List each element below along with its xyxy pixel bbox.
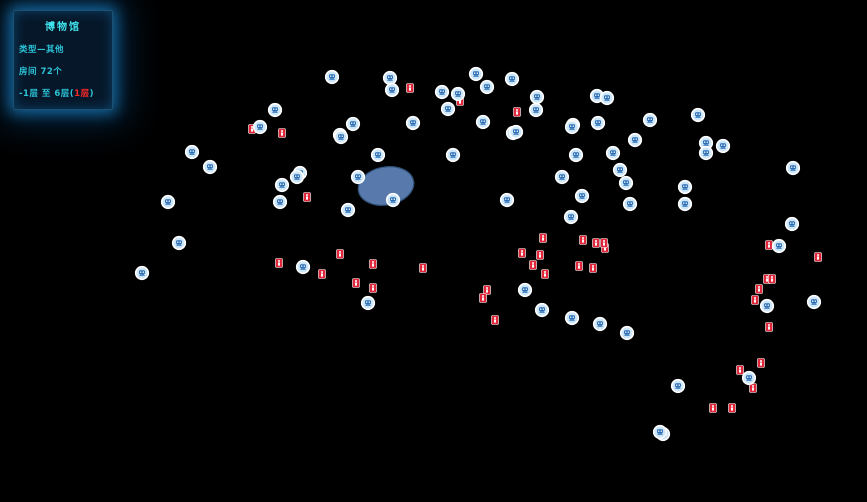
camera-marker-icon[interactable] — [679, 198, 692, 211]
exit-marker-icon[interactable] — [514, 108, 521, 117]
camera-marker-icon[interactable] — [362, 297, 375, 310]
camera-marker-icon[interactable] — [773, 240, 786, 253]
floor-range-prefix: -1层 至 6层( — [19, 89, 74, 99]
building-floors-row: -1层 至 6层(1层) — [19, 87, 107, 99]
camera-marker-icon[interactable] — [452, 88, 465, 101]
camera-marker-icon[interactable] — [447, 149, 460, 162]
app-viewport: 博物馆 类型—其他 房间 72个 -1层 至 6层(1层) — [0, 0, 867, 502]
exit-marker-icon[interactable] — [769, 275, 776, 284]
camera-marker-icon[interactable] — [506, 73, 519, 86]
building-info-panel: 博物馆 类型—其他 房间 72个 -1层 至 6层(1层) — [13, 10, 113, 110]
camera-marker-icon[interactable] — [342, 204, 355, 217]
camera-marker-icon[interactable] — [654, 426, 667, 439]
camera-marker-icon[interactable] — [442, 103, 455, 116]
camera-marker-icon[interactable] — [204, 161, 217, 174]
camera-marker-icon[interactable] — [276, 179, 289, 192]
exit-marker-icon[interactable] — [590, 264, 597, 273]
exit-marker-icon[interactable] — [766, 241, 773, 250]
building-rooms-row: 房间 72个 — [19, 65, 107, 77]
camera-marker-icon[interactable] — [436, 86, 449, 99]
camera-marker-icon[interactable] — [556, 171, 569, 184]
camera-marker-icon[interactable] — [326, 71, 339, 84]
exit-marker-icon[interactable] — [542, 270, 549, 279]
camera-marker-icon[interactable] — [274, 196, 287, 209]
exit-marker-icon[interactable] — [420, 264, 427, 273]
camera-marker-icon[interactable] — [570, 149, 583, 162]
camera-marker-icon[interactable] — [162, 196, 175, 209]
exit-marker-icon[interactable] — [540, 234, 547, 243]
camera-marker-icon[interactable] — [700, 147, 713, 160]
camera-marker-icon[interactable] — [787, 162, 800, 175]
camera-marker-icon[interactable] — [601, 92, 614, 105]
camera-marker-icon[interactable] — [136, 267, 149, 280]
camera-marker-icon[interactable] — [347, 118, 360, 131]
exit-marker-icon[interactable] — [766, 323, 773, 332]
exit-marker-icon[interactable] — [537, 251, 544, 260]
camera-marker-icon[interactable] — [173, 237, 186, 250]
camera-marker-icon[interactable] — [565, 211, 578, 224]
camera-marker-icon[interactable] — [620, 177, 633, 190]
camera-marker-icon[interactable] — [536, 304, 549, 317]
exit-marker-icon[interactable] — [480, 294, 487, 303]
camera-marker-icon[interactable] — [510, 126, 523, 139]
camera-marker-icon[interactable] — [692, 109, 705, 122]
exit-marker-icon[interactable] — [353, 279, 360, 288]
exit-marker-icon[interactable] — [304, 193, 311, 202]
camera-marker-icon[interactable] — [269, 104, 282, 117]
camera-marker-icon[interactable] — [614, 164, 627, 177]
camera-marker-icon[interactable] — [470, 68, 483, 81]
camera-marker-icon[interactable] — [335, 131, 348, 144]
camera-marker-icon[interactable] — [717, 140, 730, 153]
camera-marker-icon[interactable] — [566, 312, 579, 325]
camera-marker-icon[interactable] — [407, 117, 420, 130]
exit-marker-icon[interactable] — [370, 284, 377, 293]
camera-marker-icon[interactable] — [519, 284, 532, 297]
camera-marker-icon[interactable] — [481, 81, 494, 94]
exit-marker-icon[interactable] — [407, 84, 414, 93]
camera-marker-icon[interactable] — [297, 261, 310, 274]
exit-marker-icon[interactable] — [492, 316, 499, 325]
camera-marker-icon[interactable] — [384, 72, 397, 85]
exit-marker-icon[interactable] — [756, 285, 763, 294]
camera-marker-icon[interactable] — [761, 300, 774, 313]
exit-marker-icon[interactable] — [593, 239, 600, 248]
exit-marker-icon[interactable] — [710, 404, 717, 413]
selection-blob — [355, 162, 417, 209]
exit-marker-icon[interactable] — [279, 129, 286, 138]
camera-marker-icon[interactable] — [531, 91, 544, 104]
camera-marker-icon[interactable] — [291, 171, 304, 184]
exit-marker-icon[interactable] — [601, 239, 608, 248]
markers-layer — [136, 68, 822, 441]
building-3d-scene[interactable] — [0, 0, 867, 502]
camera-marker-icon[interactable] — [607, 147, 620, 160]
camera-marker-icon[interactable] — [679, 181, 692, 194]
exit-marker-icon[interactable] — [276, 259, 283, 268]
camera-marker-icon[interactable] — [372, 149, 385, 162]
camera-marker-icon[interactable] — [621, 327, 634, 340]
building-name: 博物馆 — [19, 18, 107, 33]
camera-marker-icon[interactable] — [530, 104, 543, 117]
exit-marker-icon[interactable] — [576, 262, 583, 271]
camera-marker-icon[interactable] — [501, 194, 514, 207]
camera-marker-icon[interactable] — [477, 116, 490, 129]
camera-marker-icon[interactable] — [594, 318, 607, 331]
camera-marker-icon[interactable] — [624, 198, 637, 211]
exit-marker-icon[interactable] — [737, 366, 744, 375]
camera-marker-icon[interactable] — [566, 121, 579, 134]
camera-marker-icon[interactable] — [808, 296, 821, 309]
exit-marker-icon[interactable] — [580, 236, 587, 245]
camera-marker-icon[interactable] — [386, 84, 399, 97]
camera-marker-icon[interactable] — [576, 190, 589, 203]
building-type-row: 类型—其他 — [19, 43, 107, 55]
exit-marker-icon[interactable] — [752, 296, 759, 305]
camera-marker-icon[interactable] — [786, 218, 799, 231]
camera-marker-icon[interactable] — [254, 121, 267, 134]
current-floor: 1层 — [74, 89, 89, 99]
camera-marker-icon[interactable] — [644, 114, 657, 127]
exit-marker-icon[interactable] — [319, 270, 326, 279]
exit-marker-icon[interactable] — [370, 260, 377, 269]
exit-marker-icon[interactable] — [530, 261, 537, 270]
exit-marker-icon[interactable] — [484, 286, 491, 295]
camera-marker-icon[interactable] — [352, 171, 365, 184]
exit-marker-icon[interactable] — [337, 250, 344, 259]
camera-marker-icon[interactable] — [672, 380, 685, 393]
exit-marker-icon[interactable] — [758, 359, 765, 368]
exit-marker-icon[interactable] — [815, 253, 822, 262]
camera-marker-icon[interactable] — [387, 194, 400, 207]
exit-marker-icon[interactable] — [729, 404, 736, 413]
camera-marker-icon[interactable] — [592, 117, 605, 130]
exit-marker-icon[interactable] — [519, 249, 526, 258]
floor-range-suffix: ) — [90, 89, 94, 99]
camera-marker-icon[interactable] — [743, 372, 756, 385]
camera-marker-icon[interactable] — [629, 134, 642, 147]
camera-marker-icon[interactable] — [186, 146, 199, 159]
